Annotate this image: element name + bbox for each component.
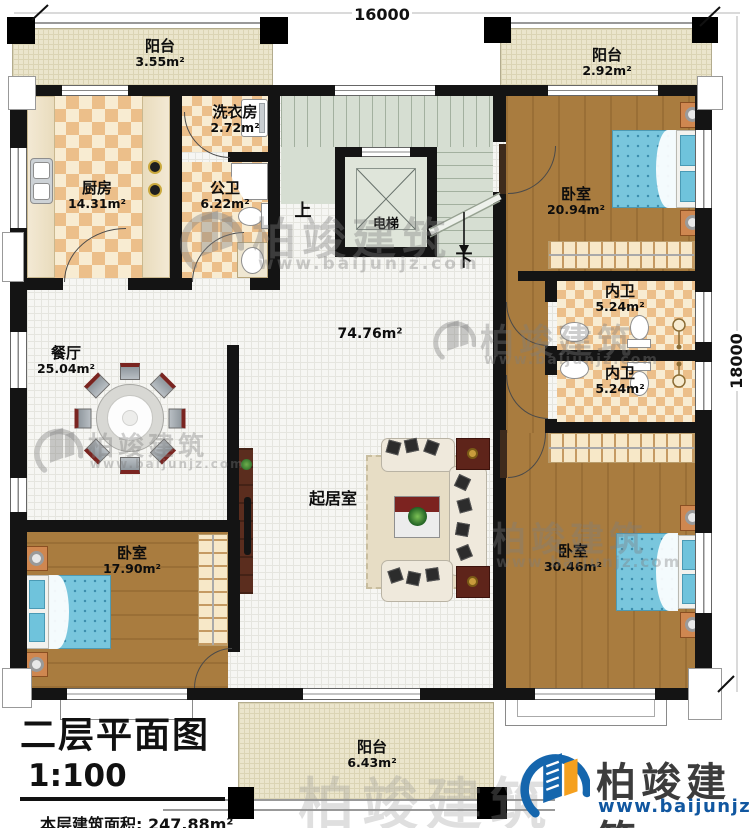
wall-segment: [545, 422, 695, 433]
lamp-icon: [29, 551, 44, 566]
room-label-balcony-tr: 阳台 2.92m²: [582, 47, 631, 79]
wall-segment: [27, 278, 63, 290]
tv-icon: [244, 497, 251, 555]
wall-segment: [250, 278, 280, 290]
wall-segment: [128, 85, 335, 96]
wardrobe: [198, 534, 228, 646]
wall-segment: [182, 278, 192, 290]
room-area: 2.72m²: [210, 121, 259, 135]
room-area: 17.90m²: [103, 562, 161, 576]
title-underline: [20, 797, 225, 801]
room-area: 25.04m²: [37, 362, 95, 376]
window: [695, 130, 712, 208]
outdoor-platform: [8, 76, 36, 110]
door-leaf: [500, 430, 507, 478]
window-bay: [517, 700, 655, 717]
room-name: 阳台: [135, 38, 184, 55]
room-area: 5.24m²: [595, 382, 644, 396]
elevator-door: [362, 147, 410, 157]
room-label-kitchen: 厨房 14.31m²: [68, 180, 126, 212]
title-block: 二层平面图 1:100 本层建筑面积: 247.88m² 层高: 3.2m: [20, 706, 300, 828]
room-area: 2.92m²: [582, 64, 631, 78]
dimension-right: 18000: [727, 331, 745, 391]
wall-segment: [695, 342, 712, 362]
balcony-rail: [496, 22, 716, 24]
room-name: 阳台: [582, 47, 631, 64]
living-room-text: 起居室: [309, 490, 357, 508]
wall-segment: [545, 271, 557, 302]
sliding-door: [62, 85, 128, 96]
window: [695, 292, 712, 342]
stair-landing-left: [281, 147, 335, 204]
room-label-dining: 餐厅 25.04m²: [37, 345, 95, 377]
room-label-balcony-tl: 阳台 3.55m²: [135, 38, 184, 70]
wall-segment: [187, 688, 303, 700]
brand-url: www.baijunjz.com: [598, 796, 750, 817]
wall-segment: [435, 85, 548, 96]
dimension-top: 16000: [352, 5, 412, 23]
watermark-url: www.baijunjz.com: [484, 352, 659, 368]
room-name: 洗衣房: [210, 104, 259, 121]
room-area: 14.31m²: [68, 197, 126, 211]
scale-label: 1:100: [28, 758, 127, 794]
kitchen-sink-basin2: [33, 183, 50, 200]
room-name: 卧室: [103, 545, 161, 562]
room-area: 3.55m²: [135, 55, 184, 69]
window: [10, 148, 27, 228]
stove-burner-icon: [148, 183, 162, 197]
bed-sheet: [656, 130, 676, 208]
sofa-pillow: [404, 438, 419, 453]
washing-machine-slot: [259, 103, 265, 133]
watermark-url: www.baijunjz.com: [496, 553, 681, 571]
wall-segment: [27, 520, 240, 532]
hall-area-label: 74.76m²: [337, 326, 402, 342]
watermark-logo-icon: [172, 198, 244, 276]
room-area: 20.94m²: [547, 203, 605, 217]
pillow: [29, 580, 45, 609]
room-label-bedroom-tr: 卧室 20.94m²: [547, 186, 605, 218]
bed-sheet: [656, 533, 678, 611]
window: [695, 533, 712, 613]
wall-segment: [493, 96, 506, 142]
kitchen-sink-basin: [33, 162, 50, 179]
brand-logo-icon: [512, 746, 590, 818]
room-label-laundry: 洗衣房 2.72m²: [210, 104, 259, 136]
wall-segment: [695, 410, 712, 533]
dining-table-center: [122, 410, 138, 426]
wall-segment: [695, 208, 712, 292]
room-name: 餐厅: [37, 345, 95, 362]
outdoor-platform: [2, 232, 24, 282]
sliding-door: [548, 85, 658, 96]
window: [335, 85, 435, 96]
floor-plan: 阳台 3.55m² 阳台 2.92m² 厨房 14.31m² 洗衣房 2.72m…: [0, 0, 750, 828]
column: [260, 17, 288, 44]
wall-segment: [227, 345, 239, 525]
balcony-rail: [8, 22, 276, 24]
sofa-pillow: [455, 522, 470, 537]
living-room-label: 起居室: [309, 490, 357, 508]
room-label-bath2: 内卫 5.24m²: [595, 365, 644, 397]
outdoor-platform: [2, 668, 32, 708]
wall-segment: [228, 152, 268, 162]
sofa-pillow: [406, 571, 421, 586]
sofa-pillow: [425, 567, 440, 582]
candle-icon: [467, 448, 478, 459]
hall-area-text: 74.76m²: [337, 326, 402, 342]
dining-chair: [120, 363, 140, 380]
outdoor-platform: [688, 668, 722, 720]
room-label-bedroom-bl: 卧室 17.90m²: [103, 545, 161, 577]
room-name: 阳台: [347, 739, 396, 756]
column: [692, 17, 718, 43]
window: [67, 688, 187, 700]
wall-segment: [10, 388, 27, 478]
candle-icon: [467, 576, 478, 587]
stair-flight-top: [281, 96, 493, 147]
outdoor-platform: [697, 76, 723, 110]
window: [535, 688, 655, 700]
pillow: [29, 613, 45, 642]
window: [10, 478, 27, 512]
column: [7, 17, 35, 44]
stove-burner-icon: [148, 160, 162, 174]
room-name: 公卫: [200, 180, 249, 197]
watermark-logo-icon: [428, 312, 476, 364]
window: [695, 362, 712, 410]
watermark-logo-icon: [28, 418, 83, 478]
room-name: 厨房: [68, 180, 126, 197]
floor-area-line: 本层建筑面积: 247.88m²: [40, 811, 300, 828]
room-area: 5.24m²: [595, 300, 644, 314]
wall-segment: [228, 520, 240, 652]
room-name: 卧室: [547, 186, 605, 203]
column: [484, 17, 511, 43]
room-name: 内卫: [595, 283, 644, 300]
room-label-bath1: 内卫 5.24m²: [595, 283, 644, 315]
wall-segment: [420, 688, 535, 700]
door-leaf: [499, 144, 506, 194]
wall-segment: [128, 278, 182, 290]
sliding-door: [303, 688, 420, 700]
watermark-url: www.baijunjz.com: [90, 457, 245, 471]
window: [10, 332, 27, 388]
wardrobe: [548, 433, 695, 463]
page-title: 二层平面图: [20, 706, 210, 758]
watermark-url: www.baijunjz.com: [258, 254, 480, 274]
wardrobe: [548, 241, 695, 269]
plant-icon: [408, 507, 427, 526]
